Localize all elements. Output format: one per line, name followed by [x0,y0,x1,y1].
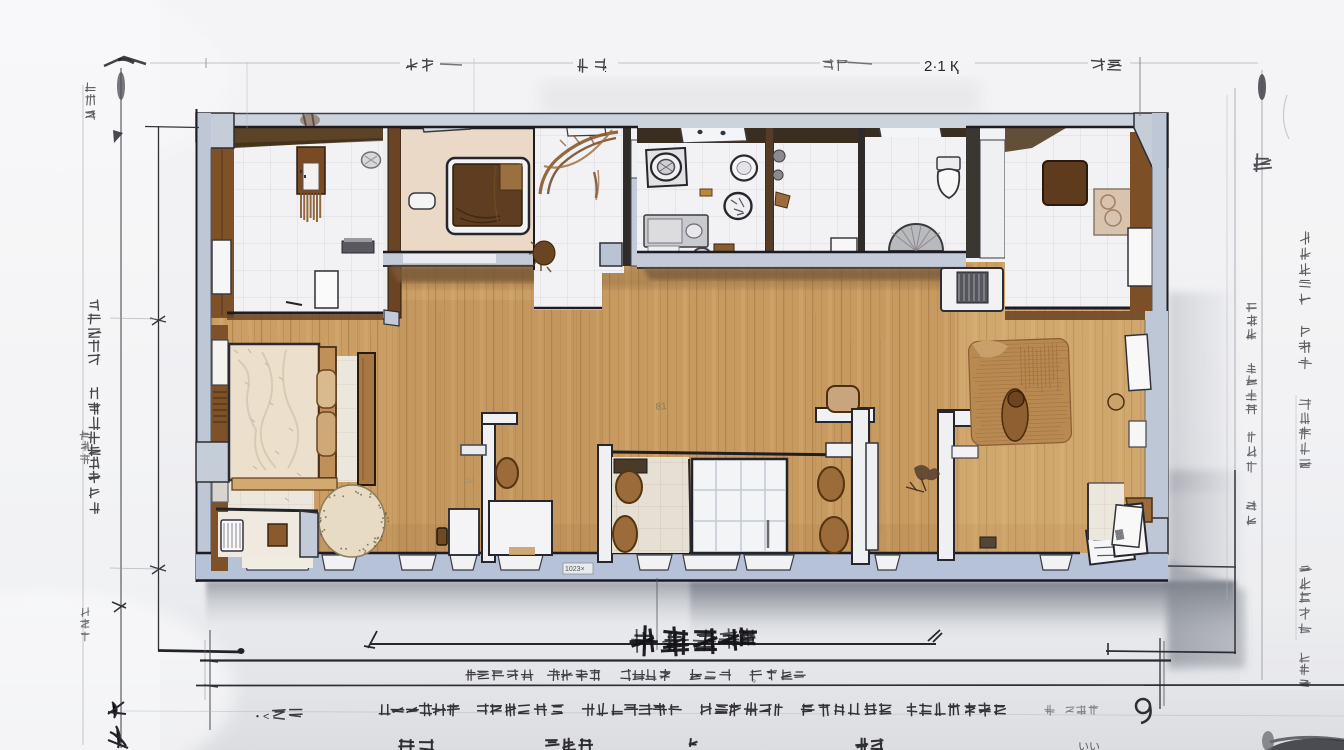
svg-text:・<: ・< [252,711,269,723]
svg-text:いい: いい [1078,741,1100,750]
svg-text::: : [604,63,607,75]
svg-text:OM: OM [464,479,474,485]
svg-text:1023×: 1023× [565,566,585,573]
svg-text:。 ・: 。 ・ [752,674,775,685]
svg-text:2·1 Қ: 2·1 Қ [924,58,959,75]
svg-text:81: 81 [655,401,667,413]
